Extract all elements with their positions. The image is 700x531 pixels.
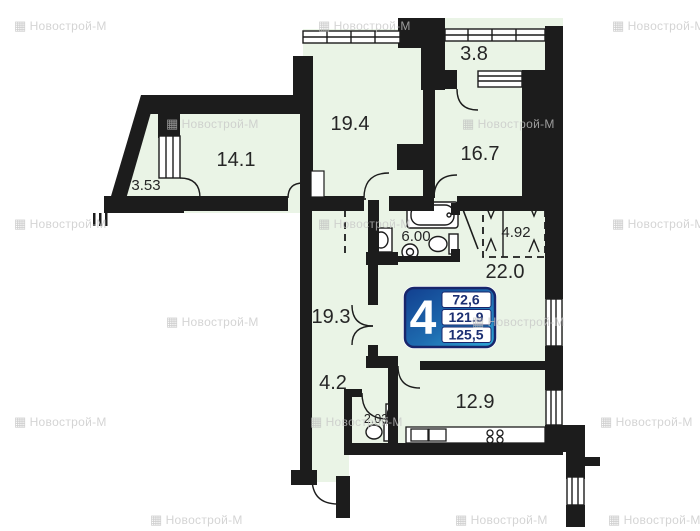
badge-apartment-area: 121.9 (448, 309, 483, 325)
badge-rooms-count: 4 (410, 292, 437, 345)
window-balcony-top (478, 71, 522, 87)
glazing-band-balcony-top (445, 29, 545, 41)
duct-niche (311, 171, 324, 197)
room-area-label-22-0: 22.0 (486, 261, 525, 283)
room-area-label-3-53: 3.53 (131, 177, 160, 194)
floorplan-page: 3.8 19.4 16.7 14.1 3.53 6.00 4.92 22.0 1… (0, 0, 700, 531)
room-area-label-12-9: 12.9 (456, 391, 495, 413)
floor-plan-svg: 3.8 19.4 16.7 14.1 3.53 6.00 4.92 22.0 1… (0, 0, 700, 531)
glazing-band-top-left (303, 31, 400, 43)
room-area-label-19-3: 19.3 (312, 306, 351, 328)
room-area-label-2-03: 2.03 (364, 412, 388, 426)
room-area-label-19-4: 19.4 (331, 113, 370, 135)
room-area-label-6-00: 6.00 (401, 228, 430, 245)
badge-total-area: 125,5 (448, 327, 483, 343)
room-area-label-14-1: 14.1 (217, 149, 256, 171)
room-area-label-4-2: 4.2 (319, 372, 347, 394)
window-balcony-left (159, 136, 180, 178)
kitchen-counter (406, 427, 545, 443)
room-area-label-16-7: 16.7 (461, 143, 500, 165)
apartment-info-badge: 4 72,6 121.9 125,5 (403, 286, 497, 349)
window-bottom-bay (567, 477, 584, 505)
window-right-hall (546, 299, 562, 346)
window-right-kitchen (546, 390, 562, 425)
badge-living-area: 72,6 (452, 292, 479, 308)
room-area-label-3-8: 3.8 (460, 43, 488, 65)
room-area-label-4-92: 4.92 (501, 224, 530, 241)
